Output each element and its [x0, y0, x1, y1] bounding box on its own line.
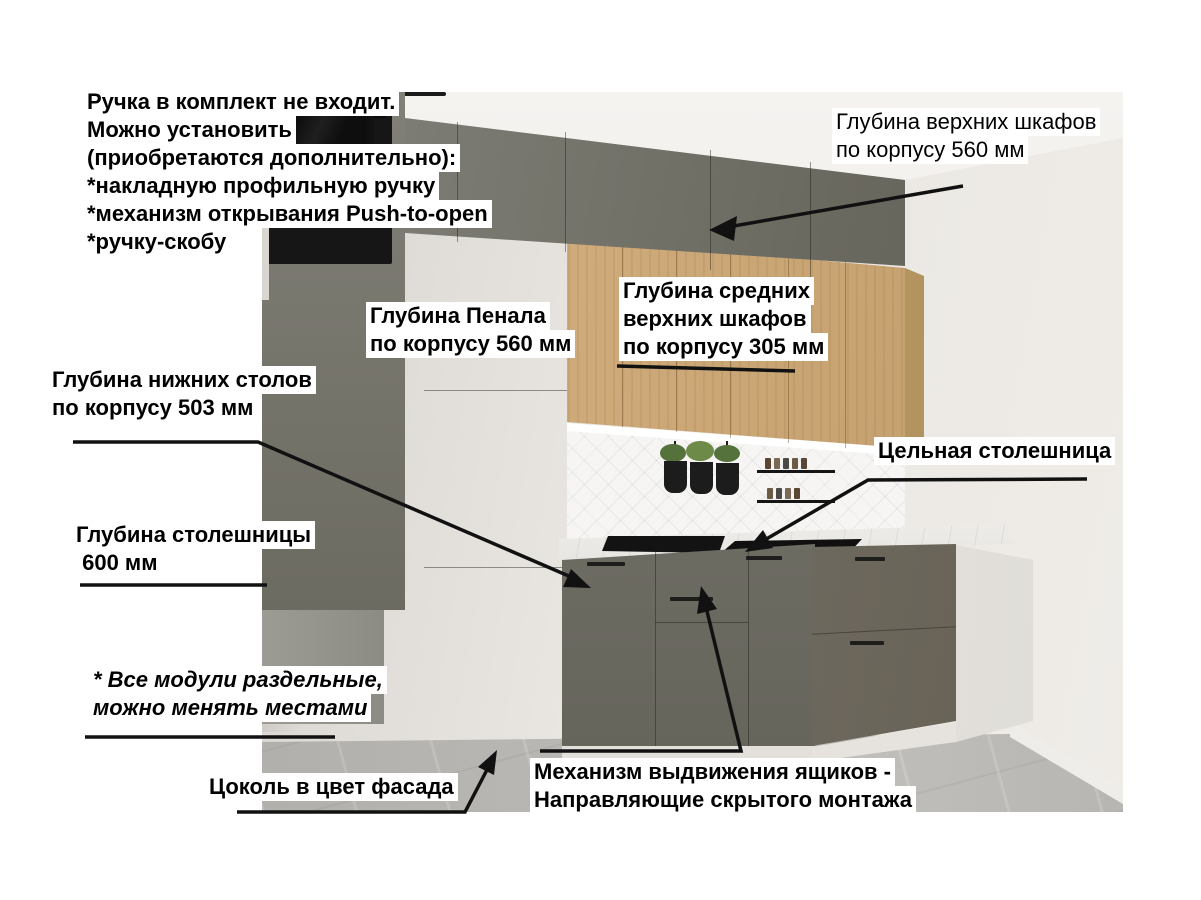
cabinet-handle: [587, 562, 625, 566]
cabinet-seam: [810, 162, 811, 282]
drawer-handle: [850, 641, 884, 645]
label-line: по корпусу 560 мм: [366, 330, 575, 358]
label-line: Цоколь в цвет фасада: [205, 773, 458, 801]
spice-jar: [792, 458, 798, 469]
label-line: по корпусу 305 мм: [619, 333, 828, 361]
cabinet-seam: [424, 567, 567, 568]
label-line: Цельная столешница: [874, 437, 1115, 465]
spice-jar: [767, 488, 773, 499]
label-line: Направляющие скрытого монтажа: [530, 786, 916, 814]
spice-jar: [783, 458, 789, 469]
label-line: верхних шкафов: [619, 305, 811, 333]
label-line: *механизм открывания Push-to-open: [83, 200, 492, 228]
label-line: Глубина Пенала: [366, 302, 550, 330]
tall-cabinet-depth-label: Глубина Пенала по корпусу 560 мм: [366, 302, 575, 358]
cabinet-seam: [424, 390, 567, 391]
label-line: * Все модули раздельные,: [89, 666, 387, 694]
label-line: Глубина средних: [619, 277, 814, 305]
drawer-handle: [855, 557, 885, 561]
upper-cabinets-depth-label: Глубина верхних шкафов по корпусу 560 мм: [832, 108, 1100, 164]
label-line: Механизм выдвижения ящиков -: [530, 758, 895, 786]
label-line: по корпусу 560 мм: [832, 136, 1028, 164]
spice-shelf-bar: [757, 500, 835, 503]
spice-jar: [776, 488, 782, 499]
plant: [660, 444, 686, 462]
mid-upper-cabinets-depth-label: Глубина средних верхних шкафов по корпус…: [619, 277, 828, 361]
planter-pot: [664, 461, 687, 493]
planter-pot: [716, 463, 739, 495]
cabinet-handle: [746, 556, 782, 560]
plinth-label: Цоколь в цвет фасада: [205, 773, 458, 801]
label-line: 600 мм: [72, 549, 161, 577]
label-line: можно менять местами: [89, 694, 371, 722]
solid-countertop-label: Цельная столешница: [874, 437, 1115, 465]
label-line: (приобретаются дополнительно):: [83, 144, 460, 172]
modules-note-label: * Все модули раздельные, можно менять ме…: [89, 666, 387, 722]
label-line: Глубина верхних шкафов: [832, 108, 1100, 136]
label-line: *ручку-скобу: [83, 228, 230, 256]
cabinet-seam: [655, 550, 656, 746]
annotated-kitchen-image: Ручка в комплект не входит. Можно устано…: [0, 0, 1201, 900]
drawer-seam: [655, 622, 748, 623]
spice-jar: [794, 488, 800, 499]
cabinet-seam: [565, 132, 566, 252]
cabinet-seam: [748, 547, 749, 746]
plant: [714, 445, 740, 462]
spice-jar: [774, 458, 780, 469]
spice-shelf-bar: [757, 470, 835, 473]
plant: [686, 441, 714, 461]
countertop-depth-label: Глубина столешницы 600 мм: [72, 521, 315, 577]
label-line: Ручка в комплект не входит.: [83, 88, 399, 116]
drawer-mechanism-label: Механизм выдвижения ящиков - Направляющи…: [530, 758, 916, 814]
planter-pot: [690, 462, 713, 494]
cabinet-seam: [845, 262, 846, 448]
spice-jar: [785, 488, 791, 499]
label-line: Глубина столешницы: [72, 521, 315, 549]
spice-jar: [801, 458, 807, 469]
label-line: Можно установить: [83, 116, 296, 144]
handle-note-label: Ручка в комплект не входит. Можно устано…: [83, 88, 492, 256]
label-line: *накладную профильную ручку: [83, 172, 439, 200]
label-line: Глубина нижних столов: [48, 366, 316, 394]
drawer-handle: [670, 597, 713, 601]
spice-jar: [765, 458, 771, 469]
cabinet-seam: [710, 150, 711, 270]
label-line: по корпусу 503 мм: [48, 394, 257, 422]
base-cabinets-depth-label: Глубина нижних столов по корпусу 503 мм: [48, 366, 316, 422]
